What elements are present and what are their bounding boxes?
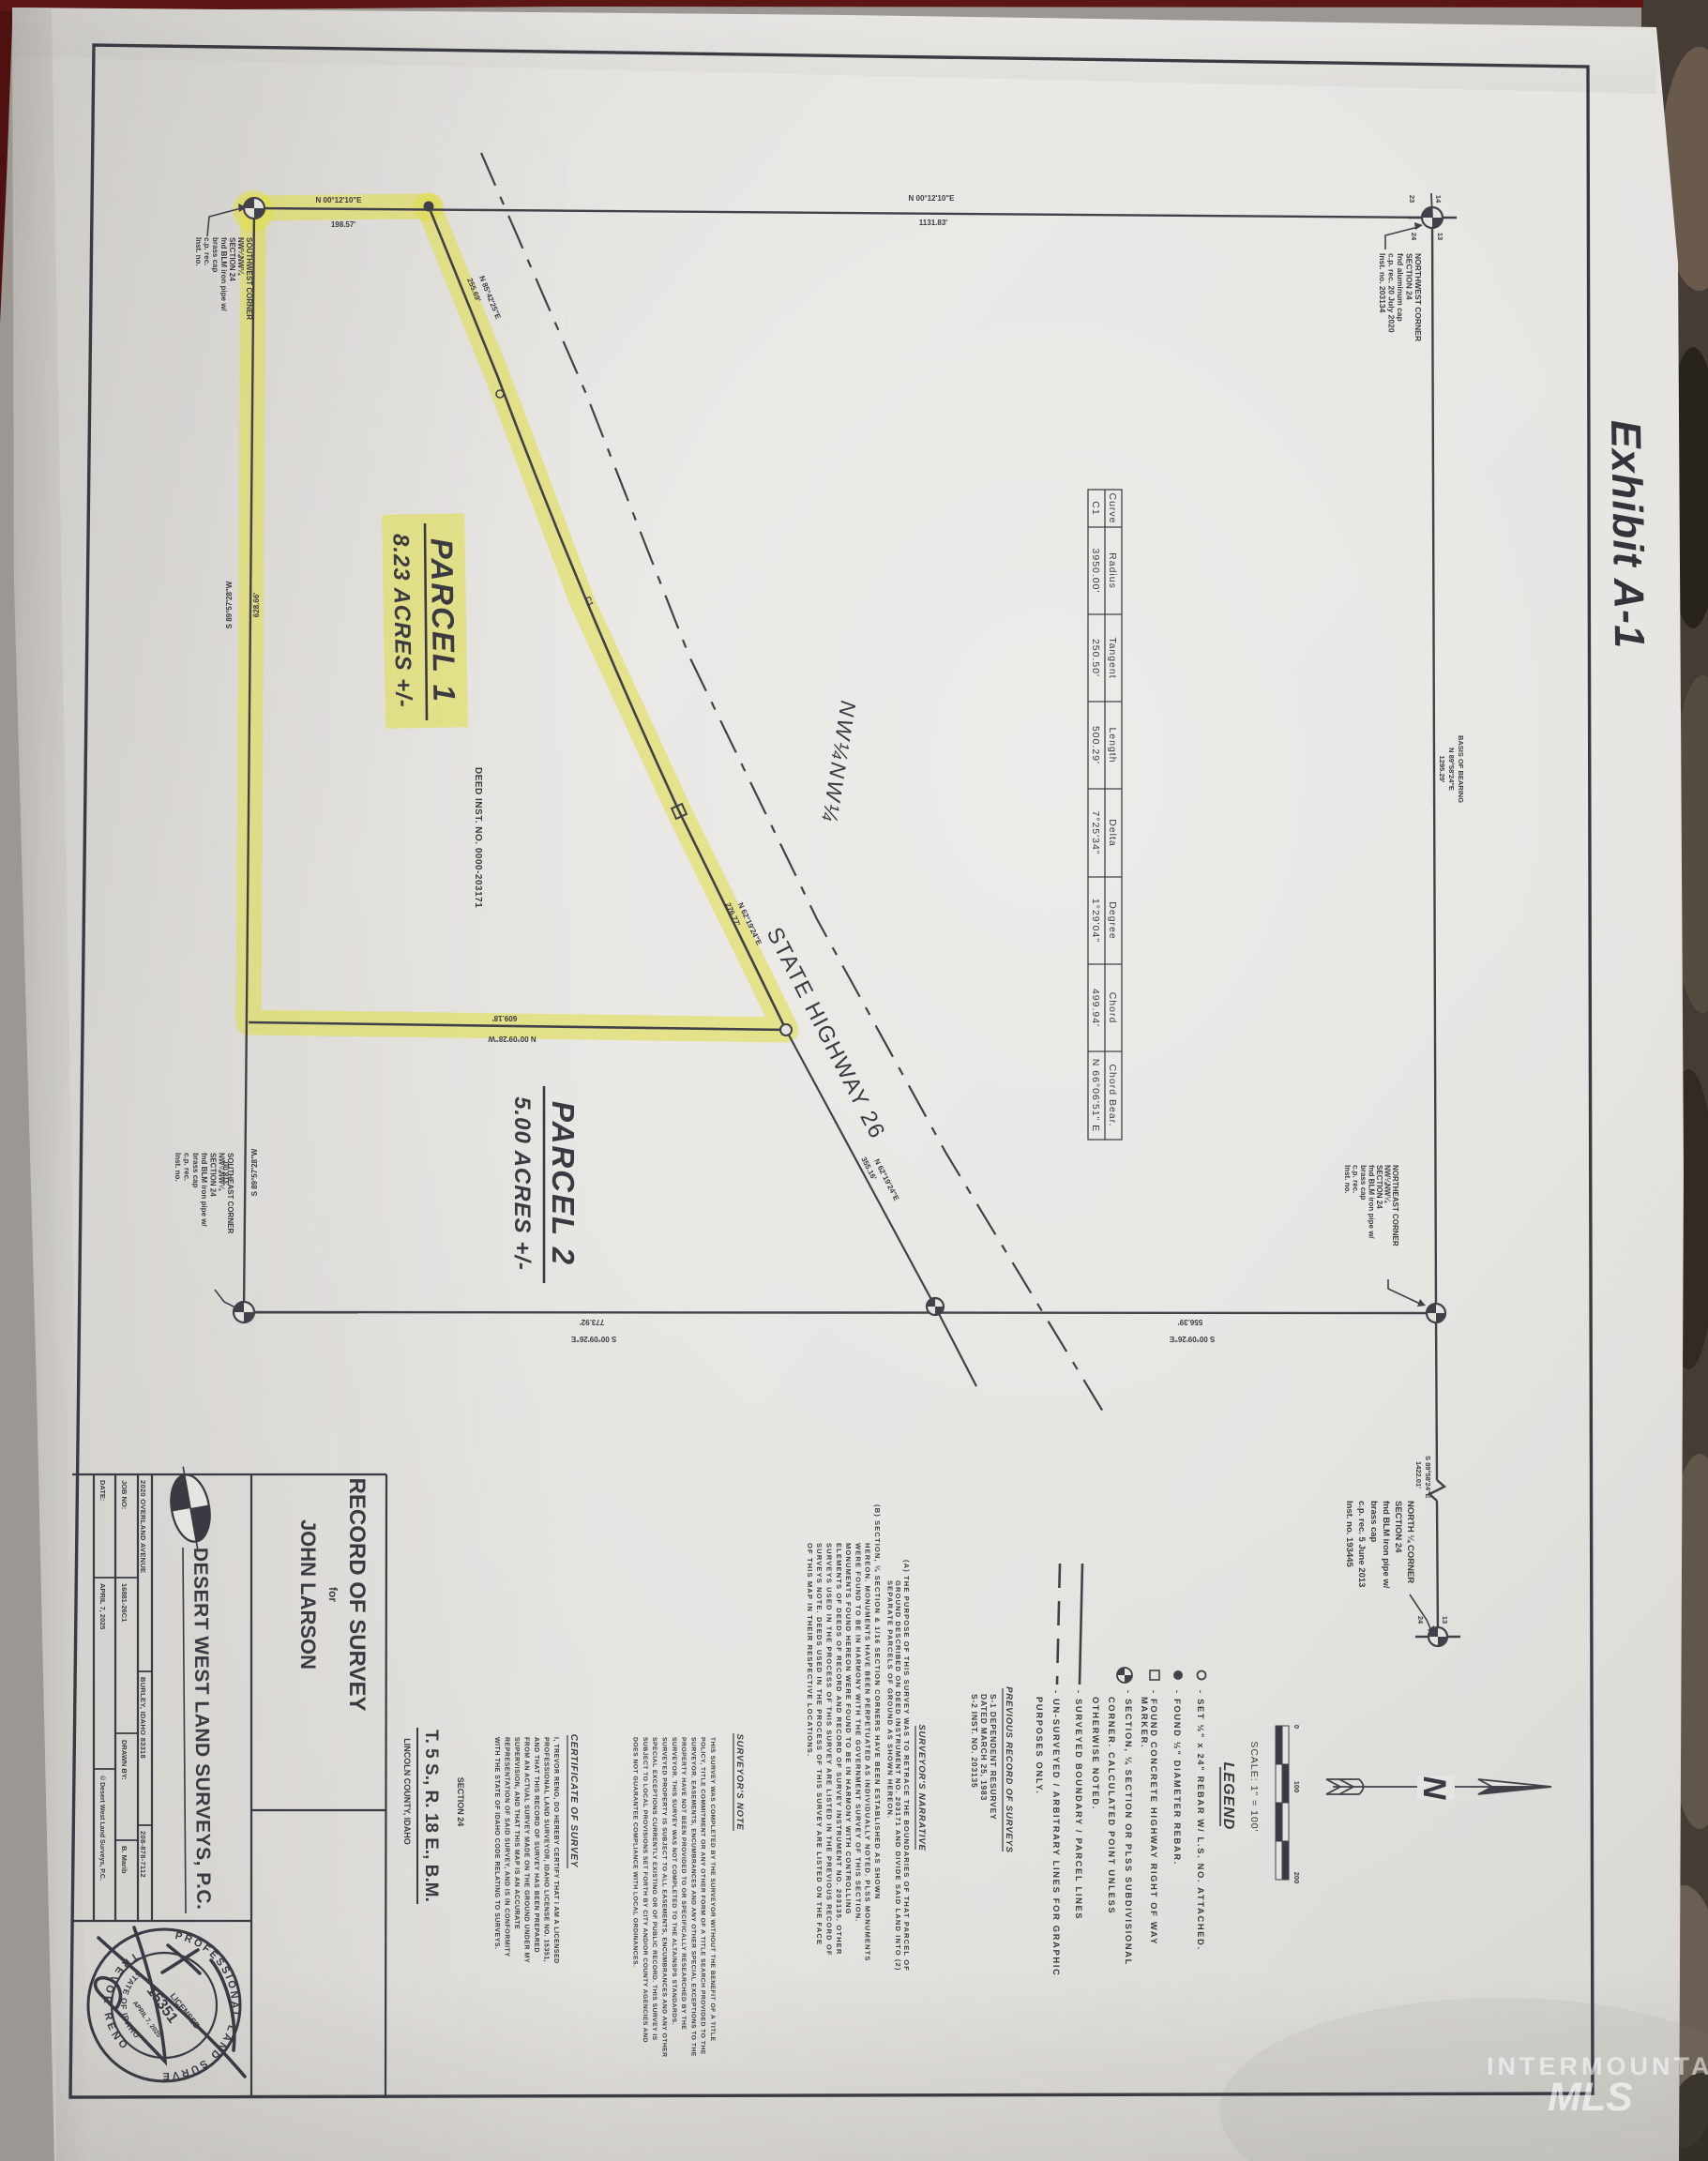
svg-text:SECTION 24: SECTION 24 (1405, 253, 1414, 300)
svg-text:brass cap: brass cap (1368, 1501, 1379, 1543)
svg-text:RECORD OF SURVEY: RECORD OF SURVEY (344, 1478, 370, 1712)
svg-text:S-2 INST. NO. 203135: S-2 INST. NO. 203135 (970, 1694, 979, 1789)
svg-text:fnd BLM iron pipe w/: fnd BLM iron pipe w/ (219, 237, 228, 311)
svg-text:1°29'04": 1°29'04" (1090, 899, 1101, 943)
svg-text:SOUTHWEST CORNER: SOUTHWEST CORNER (245, 237, 253, 320)
svg-text:Radius: Radius (1107, 552, 1118, 589)
svg-text:Length: Length (1107, 727, 1118, 763)
svg-text:N 00°12'10"E: N 00°12'10"E (316, 196, 363, 204)
svg-text:Chord Bear.: Chord Bear. (1107, 1064, 1118, 1126)
svg-text:LINCOLN COUNTY, IDAHO: LINCOLN COUNTY, IDAHO (402, 1738, 412, 1845)
svg-text:SUPERVISION, AND THAT THIS MAP: SUPERVISION, AND THAT THIS MAP IS AN ACC… (513, 1737, 520, 1929)
svg-text:SURVEYOR. THIS SURVEY WAS NOT: SURVEYOR. THIS SURVEY WAS NOT COMPLETED … (671, 1737, 677, 2025)
svg-text:NORTHWEST CORNER: NORTHWEST CORNER (1413, 253, 1423, 341)
svg-text:JOHN LARSON: JOHN LARSON (296, 1519, 320, 1670)
svg-text:MARKER.: MARKER. (1140, 1697, 1149, 1748)
svg-text:S 89°57'28"W: S 89°57'28"W (225, 581, 234, 628)
svg-text:23: 23 (1408, 195, 1416, 203)
svg-text:100: 100 (1292, 1781, 1301, 1793)
svg-text:N: N (1416, 1776, 1452, 1801)
svg-text:DEED INST. NO. 0000-203171: DEED INST. NO. 0000-203171 (473, 767, 483, 908)
svg-text:13: 13 (1441, 1616, 1449, 1624)
svg-text:AND THAT THIS RECORD OF SURVEY: AND THAT THIS RECORD OF SURVEY HAS BEEN … (533, 1737, 539, 1953)
svg-text:PARCEL 1: PARCEL 1 (424, 537, 461, 703)
svg-text:S 00°09'26"E: S 00°09'26"E (570, 1335, 616, 1343)
svg-text:SURVEYOR'S NOTE: SURVEYOR'S NOTE (734, 1734, 745, 1831)
svg-text:brass cap: brass cap (191, 1153, 200, 1187)
svg-text:24: 24 (1410, 233, 1418, 241)
svg-text:3950.00': 3950.00' (1090, 549, 1101, 594)
svg-text:S 89°58'24"E: S 89°58'24"E (1424, 1456, 1432, 1498)
svg-text:WERE FOUND TO BE IN HARMONY WI: WERE FOUND TO BE IN HARMONY WITH THE GOV… (854, 1543, 862, 1923)
svg-text:SECTION 24: SECTION 24 (1393, 1501, 1403, 1553)
svg-text:1422.01': 1422.01' (1414, 1461, 1423, 1489)
svg-text:- SET ½" x 24" REBAR W/ L.S. N: - SET ½" x 24" REBAR W/ L.S. NO. ATTACHE… (1196, 1690, 1205, 1951)
svg-text:SURVEYOR'S NARRATIVE: SURVEYOR'S NARRATIVE (916, 1724, 927, 1851)
svg-text:SPECIAL EXCEPTIONS CURRENTLY E: SPECIAL EXCEPTIONS CURRENTLY EXISTING OR… (651, 1737, 658, 2041)
svg-text:MONUMENTS FOUND HEREON WERE FO: MONUMENTS FOUND HEREON WERE FOUND TO BE … (844, 1543, 853, 1915)
svg-text:LEGEND: LEGEND (1220, 1762, 1236, 1831)
svg-text:2020 OVERLAND AVENUE: 2020 OVERLAND AVENUE (139, 1480, 147, 1573)
svg-text:POLICY, TITLE COMMITMENT OR AN: POLICY, TITLE COMMITMENT OR ANY OTHER FO… (700, 1737, 706, 2055)
svg-text:fnd BLM iron pipe w/: fnd BLM iron pipe w/ (1381, 1501, 1391, 1589)
svg-text:OTHERWISE NOTED.: OTHERWISE NOTED. (1091, 1697, 1100, 1810)
svg-text:Inst. no. 193445: Inst. no. 193445 (1344, 1501, 1354, 1567)
svg-text:HEREON. MONUMENTS HAVE BEEN PE: HEREON. MONUMENTS HAVE BEEN PERPETUATED … (864, 1543, 872, 1962)
svg-text:16881-26C1: 16881-26C1 (120, 1583, 128, 1622)
svg-text:PURPOSES ONLY.: PURPOSES ONLY. (1035, 1697, 1044, 1795)
svg-text:(A) THE PURPOSE OF THIS SURVEY: (A) THE PURPOSE OF THIS SURVEY WAS TO RE… (902, 1560, 911, 1972)
svg-text:609.18': 609.18' (492, 1014, 517, 1022)
svg-text:Inst. no.: Inst. no. (1343, 1165, 1352, 1194)
svg-text:556.39': 556.39' (1178, 1318, 1202, 1326)
svg-text:DATE:: DATE: (98, 1480, 107, 1501)
svg-text:SOUTHEAST CORNER: SOUTHEAST CORNER (226, 1153, 234, 1233)
svg-text:1295.29': 1295.29' (1438, 756, 1446, 783)
svg-text:PROPERTY HAVE NOT BEEN PROVIDE: PROPERTY HAVE NOT BEEN PROVIDED TO OR SP… (680, 1737, 687, 2030)
svg-text:PREVIOUS RECORD OF SURVEYS: PREVIOUS RECORD OF SURVEYS (1004, 1686, 1014, 1853)
svg-text:SURVEYED PROPERTY IS SUBJECT T: SURVEYED PROPERTY IS SUBJECT TO ALL EASE… (661, 1737, 668, 2058)
svg-text:DOES NOT GUARANTEE COMPLIANCE: DOES NOT GUARANTEE COMPLIANCE WITH LOCAL… (632, 1737, 639, 1967)
svg-text:Tangent: Tangent (1107, 637, 1118, 678)
svg-text:REPRESENTATION OF SAID SURVEY,: REPRESENTATION OF SAID SURVEY, AND IS IN… (504, 1737, 510, 1957)
svg-text:S 00°09'26"E: S 00°09'26"E (1169, 1335, 1215, 1343)
svg-text:ELEMENTS OF DEEDS OF RECORD AN: ELEMENTS OF DEEDS OF RECORD AND RECORD O… (835, 1543, 843, 1955)
svg-text:N 00°09'28"W: N 00°09'28"W (488, 1035, 537, 1043)
svg-text:CERTIFICATE OF SURVEY: CERTIFICATE OF SURVEY (568, 1734, 579, 1868)
svg-text:S-1 DEPENDENT RESURVEY: S-1 DEPENDENT RESURVEY (989, 1694, 998, 1821)
svg-text:c.p. rec.: c.p. rec. (203, 237, 211, 265)
svg-text:SURVEYS USED IN THE PROCESS OF: SURVEYS USED IN THE PROCESS OF THIS SURV… (825, 1543, 834, 1957)
svg-text:DRAWN BY:: DRAWN BY: (120, 1740, 128, 1780)
svg-text:Inst. no.: Inst. no. (174, 1153, 182, 1182)
svg-text:NORTH ¼ CORNER: NORTH ¼ CORNER (1405, 1501, 1415, 1583)
svg-text:c.p. rec.: c.p. rec. (183, 1153, 191, 1181)
svg-text:N 89°58'24"E: N 89°58'24"E (1447, 748, 1456, 791)
svg-text:(B) SECTION, ¼ SECTION & 1/16: (B) SECTION, ¼ SECTION & 1/16 SECTION CO… (873, 1504, 882, 1899)
svg-text:1131.83': 1131.83' (919, 219, 947, 227)
svg-text:N 66°06'51" E: N 66°06'51" E (1090, 1059, 1101, 1132)
svg-text:0: 0 (1292, 1725, 1301, 1729)
svg-text:DESERT WEST LAND SURVEYS, P.C.: DESERT WEST LAND SURVEYS, P.C. (189, 1548, 214, 1911)
svg-text:7°25'34": 7°25'34" (1090, 810, 1101, 854)
svg-text:S 89°57'28"W: S 89°57'28"W (250, 1148, 259, 1196)
svg-text:198.57': 198.57' (331, 220, 355, 229)
svg-text:JOB NO:: JOB NO: (120, 1480, 128, 1509)
svg-text:brass cap: brass cap (211, 237, 219, 272)
svg-text:24: 24 (1416, 1616, 1425, 1625)
svg-text:BURLEY, IDAHO 83318: BURLEY, IDAHO 83318 (139, 1677, 147, 1759)
svg-text:250.50': 250.50' (1090, 639, 1101, 677)
svg-text:5.00 ACRES +/-: 5.00 ACRES +/- (509, 1096, 535, 1271)
svg-text:SEPARATE PARCELS OF GROUND AS: SEPARATE PARCELS OF GROUND AS SHOWN HERE… (885, 1580, 894, 1819)
svg-text:Inst. no. 203134: Inst. no. 203134 (1378, 253, 1387, 313)
svg-text:fnd aluminum cap: fnd aluminum cap (1396, 253, 1405, 322)
svg-text:Exhibit A-1: Exhibit A-1 (1602, 419, 1654, 649)
svg-text:208-878-7112: 208-878-7112 (139, 1831, 147, 1878)
svg-text:BASIS OF BEARING: BASIS OF BEARING (1457, 735, 1465, 803)
svg-text:THIS SURVEY WAS COMPLETED BY T: THIS SURVEY WAS COMPLETED BY THE SURVEYO… (709, 1737, 716, 2041)
svg-text:SECTION 24: SECTION 24 (456, 1777, 465, 1827)
svg-text:T. 5 S., R. 18 E., B.M.: T. 5 S., R. 18 E., B.M. (421, 1730, 441, 1902)
svg-text:200: 200 (1292, 1872, 1301, 1884)
svg-text:- UN-SURVEYED / ARBITRARY LINE: - UN-SURVEYED / ARBITRARY LINES FOR GRAP… (1051, 1690, 1061, 1977)
svg-text:C1: C1 (1090, 501, 1101, 515)
svg-text:FROM AN ACTUAL SURVEY MADE ON: FROM AN ACTUAL SURVEY MADE ON THE GROUND… (523, 1737, 530, 1963)
svg-text:c.p. rec. 20 July 2020: c.p. rec. 20 July 2020 (1387, 253, 1397, 333)
svg-text:PROFESSIONAL LAND SURVEYOR, ID: PROFESSIONAL LAND SURVEYOR, IDAHO LICENS… (543, 1737, 550, 1962)
svg-text:c.p. rec. 5 June 2013: c.p. rec. 5 June 2013 (1356, 1501, 1367, 1587)
svg-text:- FOUND ½" DIAMETER REBAR.: - FOUND ½" DIAMETER REBAR. (1172, 1690, 1182, 1866)
svg-text:- SECTION, ¼ SECTION OR PLSS S: - SECTION, ¼ SECTION OR PLSS SUBDIVISION… (1124, 1690, 1133, 1966)
svg-text:N 00°12'10"E: N 00°12'10"E (909, 194, 956, 203)
svg-text:MLS: MLS (1548, 2075, 1633, 2120)
svg-text:NW¼NW¼: NW¼NW¼ (236, 237, 245, 276)
svg-text:© Desert West Land Surveys, P.: © Desert West Land Surveys, P.C. (98, 1776, 106, 1881)
svg-text:WITH THE STATE OF IDAHO CODE R: WITH THE STATE OF IDAHO CODE RELATING TO… (493, 1737, 500, 1949)
svg-text:GROUND DESCRIBED ON DEED INSTR: GROUND DESCRIBED ON DEED INSTRUMENT NO. … (894, 1580, 902, 1972)
svg-text:OF THIS MAP IN THEIR RESPECTIV: OF THIS MAP IN THEIR RESPECTIVE LOCATION… (806, 1543, 814, 1757)
svg-text:500.29': 500.29' (1090, 726, 1101, 764)
svg-text:SUBJECT TO LOCAL PROVISIONS SE: SUBJECT TO LOCAL PROVISIONS SET FORTH BY… (642, 1737, 648, 2043)
svg-text:499.94': 499.94' (1090, 989, 1101, 1027)
svg-text:14: 14 (1434, 195, 1443, 204)
svg-text:773.92': 773.92' (580, 1318, 604, 1326)
svg-text:DATED MARCH 25, 1983: DATED MARCH 25, 1983 (979, 1694, 989, 1801)
svg-text:- FOUND CONCRETE HIGHWAY RIGHT: - FOUND CONCRETE HIGHWAY RIGHT OF WAY (1149, 1690, 1158, 1945)
svg-text:- SURVEYED BOUNDARY / PARCEL L: - SURVEYED BOUNDARY / PARCEL LINES (1074, 1690, 1083, 1920)
svg-text:SCALE: 1" = 100': SCALE: 1" = 100' (1248, 1741, 1260, 1832)
svg-text:SECTION 24: SECTION 24 (228, 237, 236, 281)
svg-text:CORNER. CALCULATED POINT UNLES: CORNER. CALCULATED POINT UNLESS (1107, 1697, 1116, 1914)
svg-text:Curve: Curve (1107, 492, 1118, 523)
svg-text:fnd BLM iron pipe w/: fnd BLM iron pipe w/ (200, 1153, 208, 1227)
svg-text:SURVEYOR. EASEMENTS, ENCUMBRAN: SURVEYOR. EASEMENTS, ENCUMBRANCES AND AN… (689, 1737, 696, 2057)
svg-text:SURVEYS NOTE. DEEDS USED IN TH: SURVEYS NOTE. DEEDS USED IN THE PROCESS … (815, 1543, 824, 1945)
svg-text:Delta: Delta (1107, 819, 1118, 847)
svg-text:SECTION 24: SECTION 24 (208, 1153, 217, 1197)
svg-text:NW¼NW¼: NW¼NW¼ (218, 1153, 226, 1191)
svg-text:628.66': 628.66' (252, 593, 261, 617)
svg-text:8.23 ACRES +/-: 8.23 ACRES +/- (387, 534, 416, 708)
svg-text:Inst. no.: Inst. no. (194, 237, 203, 266)
svg-text:B. Marib: B. Marib (120, 1846, 128, 1874)
svg-text:I, TREVOR RENO, DO HEREBY CERT: I, TREVOR RENO, DO HEREBY CERTIFY THAT I… (552, 1737, 559, 1964)
svg-text:Chord: Chord (1107, 992, 1118, 1024)
svg-text:13: 13 (1436, 233, 1444, 240)
svg-text:PARCEL 2: PARCEL 2 (546, 1101, 581, 1266)
svg-text:APRIL 7, 2025: APRIL 7, 2025 (98, 1583, 107, 1629)
svg-text:for: for (326, 1587, 340, 1602)
svg-text:Degree: Degree (1107, 901, 1118, 939)
